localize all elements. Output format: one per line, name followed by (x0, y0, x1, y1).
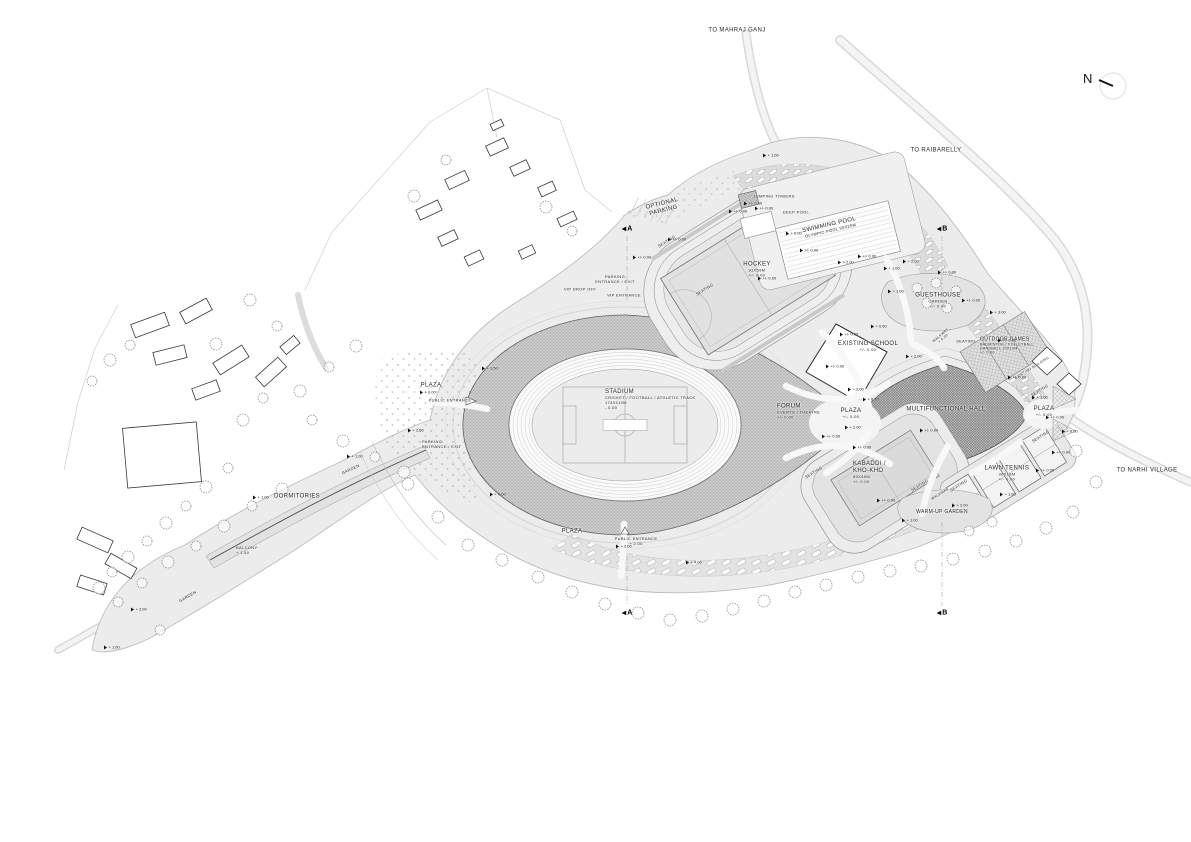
tree-icon (294, 385, 306, 397)
tree-icon (191, 541, 201, 551)
tree-icon (104, 354, 116, 366)
tree-icon (122, 551, 134, 563)
building-footprint (486, 138, 509, 156)
tree-icon (244, 294, 256, 306)
site-plan-canvas: TO MAHRAJ GANJTO RAIBARELLYOPTIONALPARKI… (0, 0, 1191, 842)
tree-icon (324, 362, 334, 372)
tree-icon (599, 598, 611, 610)
tree-icon (258, 393, 268, 403)
tree-icon (947, 553, 959, 565)
building-footprint (131, 312, 170, 337)
building-footprint (538, 181, 557, 197)
tree-icon (137, 578, 147, 588)
tree-icon (107, 567, 117, 577)
tree-icon (942, 303, 952, 313)
tree-icon (160, 517, 172, 529)
tree-icon (696, 610, 708, 622)
tree-icon (307, 415, 317, 425)
tree-icon (237, 414, 249, 426)
building-footprint (416, 200, 442, 220)
tree-icon (113, 597, 123, 607)
cricket-pitch (603, 420, 647, 431)
tree-icon (441, 155, 451, 165)
tree-icon (727, 603, 739, 615)
warm-up-garden (898, 490, 992, 533)
tree-icon (155, 625, 165, 635)
tree-icon (462, 539, 474, 551)
tree-icon (496, 554, 508, 566)
tree-icon (931, 278, 941, 288)
tree-icon (432, 511, 444, 523)
north-label: N (1083, 71, 1093, 86)
building-footprint (280, 335, 300, 354)
building-footprint (464, 250, 484, 266)
building-footprint (192, 380, 221, 400)
dormitories-band (206, 442, 446, 568)
tree-icon (987, 517, 997, 527)
tree-icon (337, 435, 349, 447)
tree-icon (223, 463, 233, 473)
tree-icon (210, 338, 222, 350)
tree-icon (852, 571, 864, 583)
building-footprint (510, 160, 531, 177)
tree-icon (142, 536, 152, 546)
tree-icon (1090, 476, 1102, 488)
building-footprint (438, 230, 459, 247)
building-footprint (77, 527, 113, 553)
tree-icon (370, 452, 380, 462)
tree-icon (532, 571, 544, 583)
tree-icon (125, 340, 135, 350)
tree-icon (272, 321, 282, 331)
tree-icon (1010, 535, 1022, 547)
tree-icon (632, 607, 644, 619)
building-footprint (153, 345, 187, 365)
tree-icon (979, 545, 991, 557)
tree-icon (218, 520, 230, 532)
tree-icon (162, 556, 174, 568)
building-footprint (490, 119, 504, 130)
tree-icon (884, 565, 896, 577)
tree-icon (276, 483, 288, 495)
tree-icon (93, 582, 105, 594)
tree-icon (402, 478, 414, 490)
tree-icon (1070, 445, 1082, 457)
building-footprint (445, 170, 470, 189)
tree-icon (964, 526, 974, 536)
road-north-stub (298, 295, 326, 368)
tree-icon (181, 501, 191, 511)
tree-icon (789, 586, 801, 598)
tree-icon (408, 190, 420, 202)
tree-icon (912, 283, 922, 293)
tree-icon (200, 481, 212, 493)
building-footprint (557, 211, 577, 227)
tree-icon (398, 466, 410, 478)
building-footprint (180, 298, 213, 324)
north-arrow-icon (1099, 73, 1126, 99)
tree-icon (1040, 522, 1052, 534)
tree-icon (566, 586, 578, 598)
tree-icon (758, 595, 770, 607)
tree-icon (820, 579, 832, 591)
tree-icon (951, 286, 961, 296)
building-footprint (518, 245, 535, 259)
tree-icon (915, 560, 927, 572)
tree-icon (567, 226, 577, 236)
tree-icon (922, 298, 932, 308)
building-footprint (256, 357, 287, 387)
tree-icon (350, 340, 362, 352)
tree-icon (247, 501, 257, 511)
tree-icon (1067, 506, 1079, 518)
tree-icon (540, 201, 552, 213)
plan-svg (0, 0, 1191, 842)
tree-icon (664, 614, 676, 626)
building-footprint (123, 422, 202, 488)
tree-icon (87, 376, 97, 386)
